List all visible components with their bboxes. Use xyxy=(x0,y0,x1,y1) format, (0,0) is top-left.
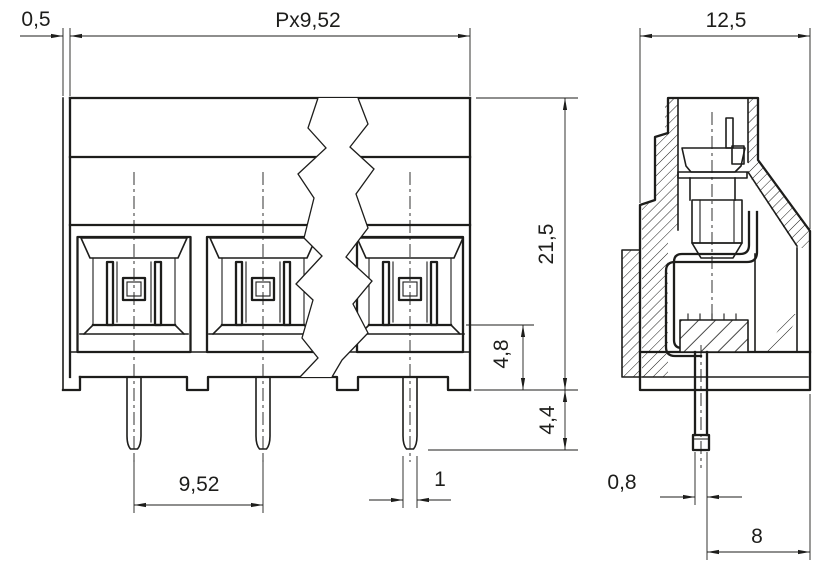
dim-pin-width: 1 xyxy=(369,456,451,508)
solder-pins-front xyxy=(127,377,417,449)
dim-label-pin-protrusion: 4,4 xyxy=(536,405,559,435)
dim-label-total-pitch: Px9,52 xyxy=(275,9,340,32)
dim-total-pitch: Px9,52 xyxy=(70,9,470,96)
clamp-block-hatch xyxy=(680,320,748,352)
terminal-block-drawing: 0,5 Px9,52 12,5 21,5 4,8 4,4 xyxy=(0,0,828,573)
dim-label-pin-to-edge: 8 xyxy=(751,525,763,548)
dim-label-pin-thickness: 0,8 xyxy=(607,471,636,494)
terminal-1 xyxy=(78,172,191,462)
dim-label-side-width: 12,5 xyxy=(706,9,747,32)
clamp-screw xyxy=(678,118,747,258)
right-wall-hatch xyxy=(748,98,758,162)
dim-label-flange-offset: 0,5 xyxy=(21,8,50,31)
front-bottom-profile xyxy=(80,377,470,390)
terminal-2 xyxy=(207,172,320,462)
dim-base-height: 4,8 xyxy=(466,325,534,390)
terminal-3 xyxy=(356,172,464,462)
left-wall-hatch xyxy=(642,98,678,377)
side-flange-plate xyxy=(622,250,640,377)
dim-pin-to-edge: 8 xyxy=(707,394,810,560)
dim-label-pin-width: 1 xyxy=(434,468,446,491)
dim-flange-offset: 0,5 xyxy=(20,8,70,96)
dim-label-pin-pitch: 9,52 xyxy=(179,473,220,496)
dim-label-housing-height: 21,5 xyxy=(535,224,558,265)
front-view xyxy=(63,98,470,462)
funnel-lip-hatch xyxy=(765,314,800,352)
dim-label-base-height: 4,8 xyxy=(490,339,513,368)
technical-drawing-canvas: 0,5 Px9,52 12,5 21,5 4,8 4,4 xyxy=(0,0,828,573)
dimensions: 0,5 Px9,52 12,5 21,5 4,8 4,4 xyxy=(20,8,810,560)
dim-pin-thickness: 0,8 xyxy=(607,452,742,560)
dim-pin-pitch: 9,52 xyxy=(134,456,263,513)
side-view xyxy=(622,98,810,468)
dim-pin-protrusion: 4,4 xyxy=(428,390,578,450)
